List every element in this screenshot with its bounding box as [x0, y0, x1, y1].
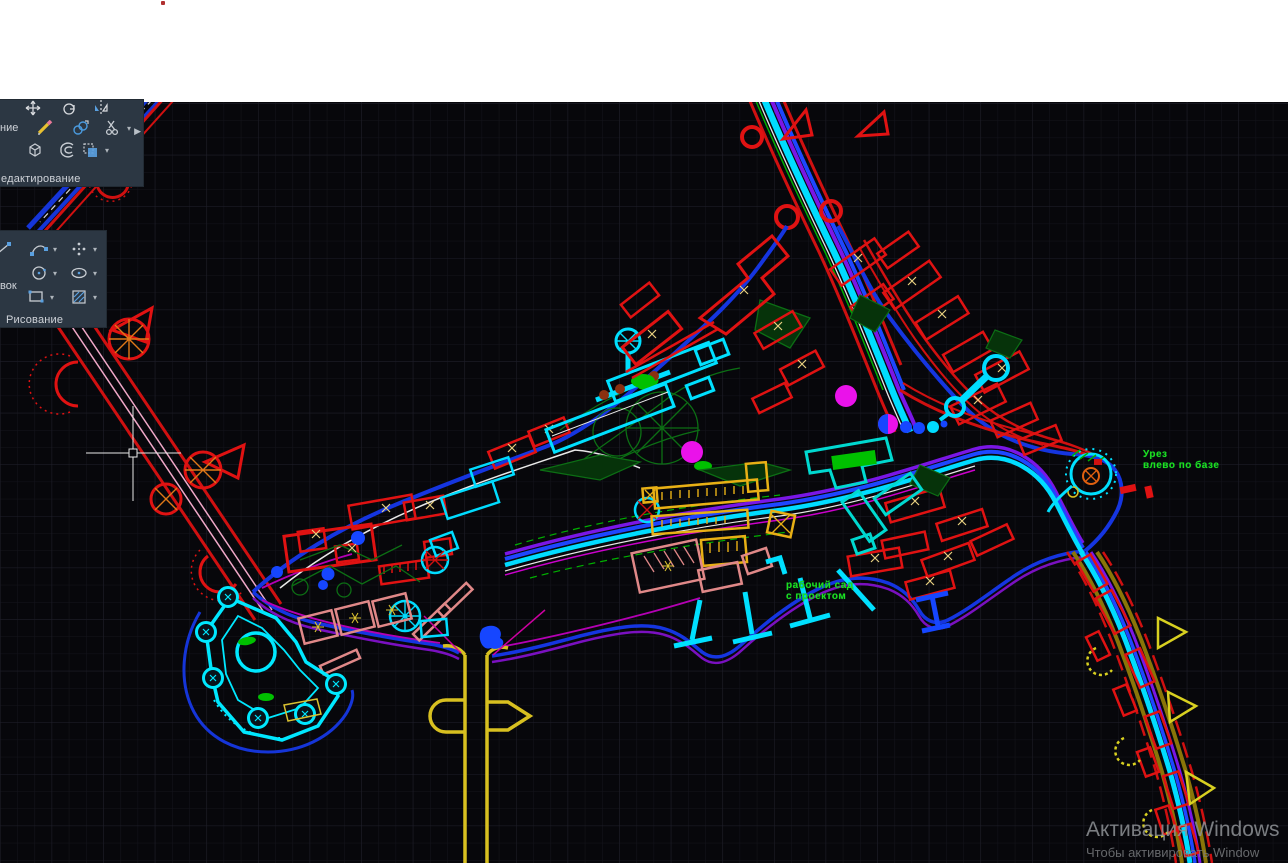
arc-tool-icon[interactable]: ▾ [28, 239, 50, 259]
ribbon-panel-modify[interactable]: ние ▾ ▾ ▶ едактирование [0, 100, 143, 186]
cad-note-center-line1: рабочий сад [786, 580, 854, 591]
trim-caret[interactable]: ▾ [127, 124, 131, 133]
stretch-caret[interactable]: ▾ [105, 146, 109, 155]
rotate-icon[interactable] [58, 100, 80, 118]
cad-note-right-line1: Урез [1143, 449, 1219, 460]
magenta-marker-2 [835, 385, 857, 407]
hatch-tool-icon[interactable]: ▾ [68, 287, 90, 307]
ellipse-tool-icon[interactable]: ▾ [68, 263, 90, 283]
point-tool-icon[interactable]: ▾ [68, 239, 90, 259]
mirror-icon[interactable] [90, 100, 112, 118]
modify-flyout-arrow[interactable]: ▶ [134, 126, 141, 137]
circle-caret[interactable]: ▾ [53, 269, 57, 278]
trim-icon[interactable]: ▾ [102, 118, 124, 138]
ellipse-caret[interactable]: ▾ [93, 269, 97, 278]
hatch-caret[interactable]: ▾ [93, 293, 97, 302]
modify-panel-label[interactable]: едактирование [0, 173, 143, 185]
line-tool-icon[interactable] [0, 239, 14, 259]
cad-note-center-line2: с проектом [786, 591, 854, 602]
move-icon[interactable] [22, 100, 44, 118]
rectangle-tool-icon[interactable]: ▾ [25, 287, 47, 307]
ribbon-panel-draw[interactable]: вок ▾ ▾ ▾ ▾ ▾ ▾ Рисование [0, 231, 106, 327]
red-speck [161, 1, 165, 5]
cad-note-center[interactable]: рабочий сад с проектом [786, 580, 854, 602]
cad-note-right-line2: влево по базе [1143, 460, 1219, 471]
explode-icon[interactable] [24, 140, 46, 160]
offset-icon[interactable] [56, 140, 78, 160]
point-caret[interactable]: ▾ [93, 245, 97, 254]
draw-panel-label[interactable]: Рисование [0, 314, 106, 326]
circle-tool-icon[interactable]: ▾ [28, 263, 50, 283]
cad-note-right[interactable]: Урез влево по базе [1143, 449, 1219, 471]
magenta-marker-1 [681, 441, 703, 463]
erase-icon[interactable] [34, 118, 56, 138]
top-white-area [0, 0, 1288, 102]
arc-caret[interactable]: ▾ [53, 245, 57, 254]
copy-icon[interactable] [70, 118, 92, 138]
grid-major [0, 0, 1288, 863]
modify-edge-label: ние [0, 122, 18, 134]
drawing-canvas[interactable] [0, 0, 1288, 863]
cad-viewport[interactable]: Урез влево по базе рабочий сад с проекто… [0, 0, 1288, 863]
stretch-icon[interactable]: ▾ [80, 140, 102, 160]
rectangle-caret[interactable]: ▾ [50, 293, 54, 302]
draw-edge-label: вок [0, 280, 17, 292]
